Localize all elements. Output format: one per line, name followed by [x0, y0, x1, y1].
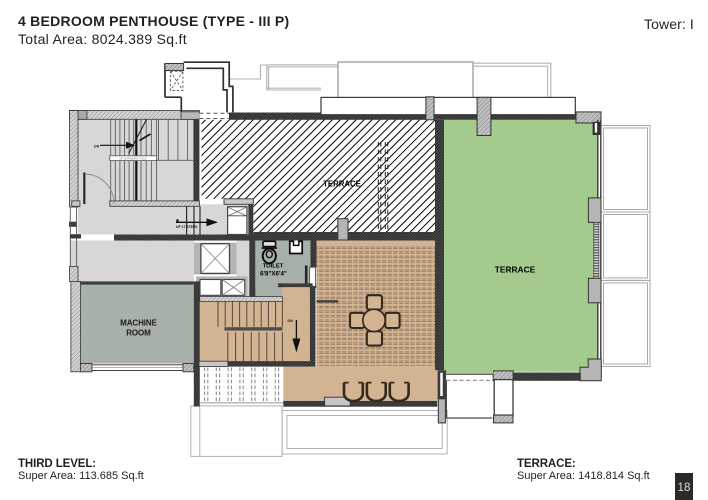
svg-text:UP 15 RISERS 7"X11": UP 15 RISERS 7"X11" [119, 157, 147, 161]
svg-text:TERRACE: TERRACE [323, 180, 361, 189]
svg-text:MACHINE: MACHINE [120, 319, 157, 328]
svg-text:UP 17 STEPS: UP 17 STEPS [176, 225, 198, 229]
svg-text:ROOM: ROOM [126, 329, 151, 338]
svg-text:6'8"X6'4": 6'8"X6'4" [260, 271, 287, 278]
svg-text:DN: DN [288, 319, 294, 323]
svg-text:TOILET: TOILET [263, 264, 284, 270]
svg-text:DN: DN [94, 144, 100, 148]
svg-text:TERRACE: TERRACE [495, 264, 536, 274]
